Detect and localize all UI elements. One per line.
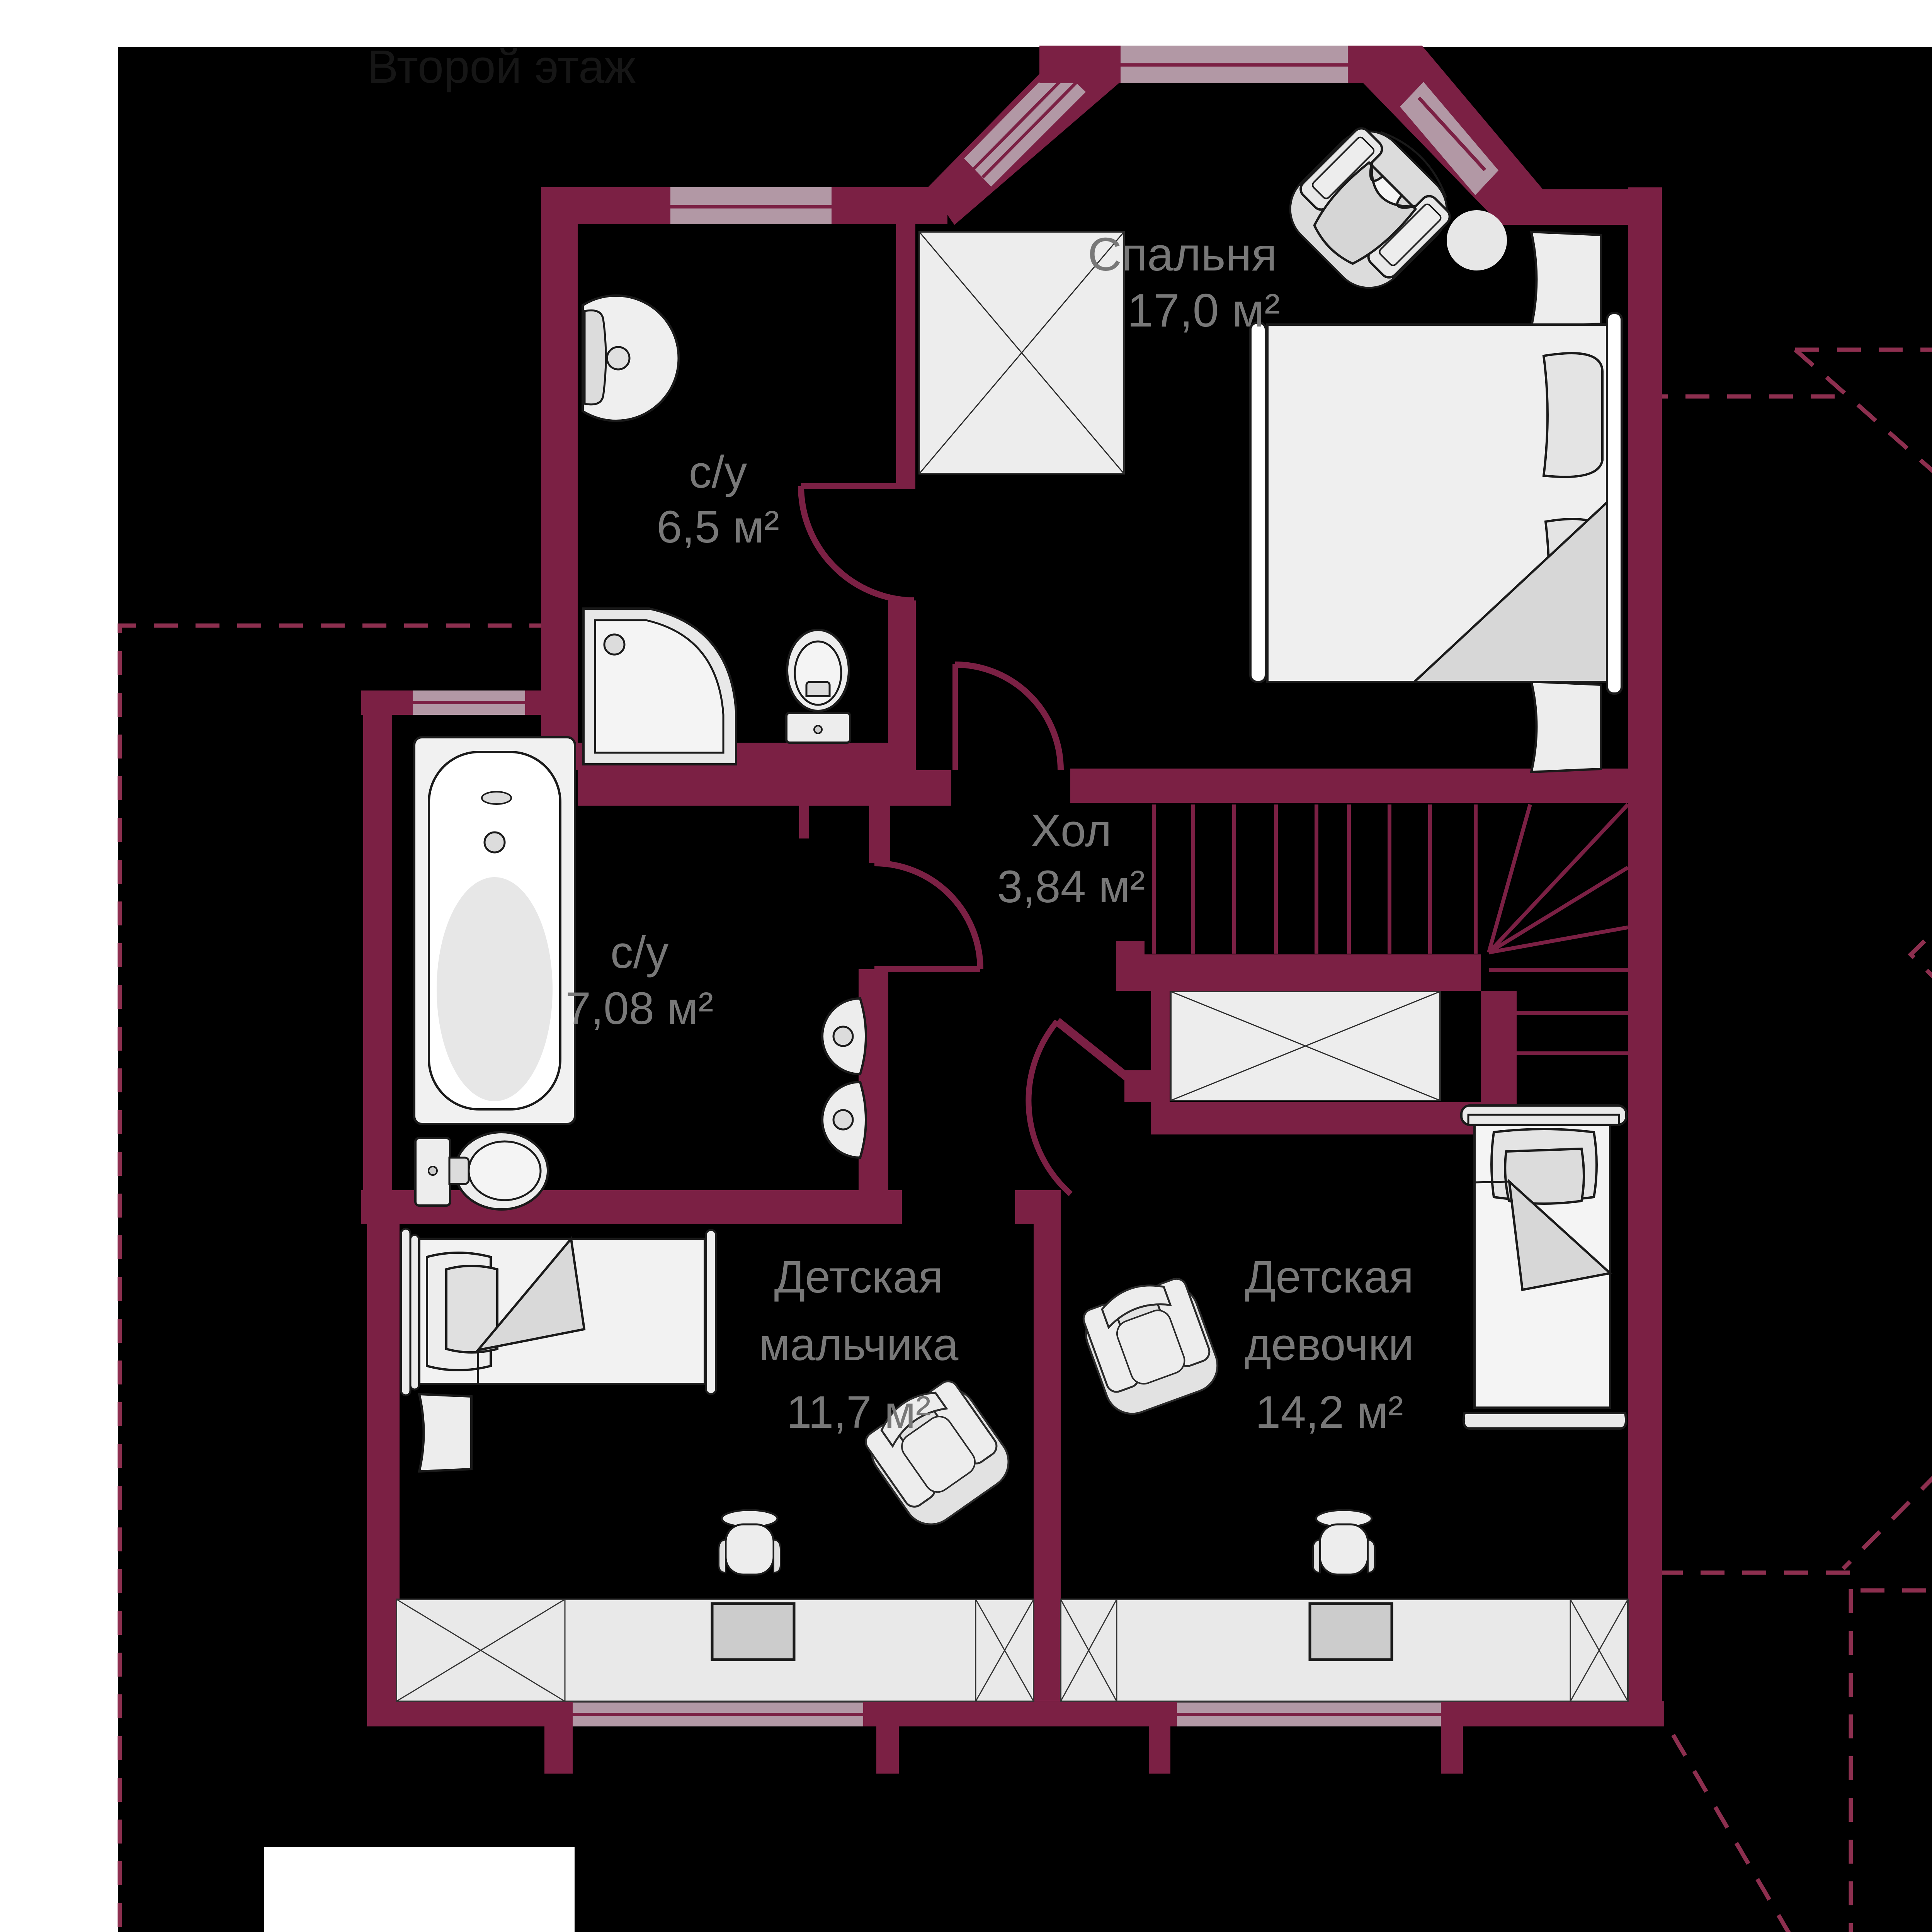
svg-text:Спальня: Спальня [1088, 228, 1277, 281]
svg-text:11,7 м²: 11,7 м² [786, 1387, 931, 1438]
svg-text:3,84 м²: 3,84 м² [997, 861, 1145, 912]
svg-text:мальчика: мальчика [759, 1319, 959, 1370]
svg-text:Детская: Детская [774, 1252, 943, 1303]
svg-text:14,2 м²: 14,2 м² [1255, 1387, 1403, 1438]
svg-text:Хол: Хол [1031, 805, 1111, 856]
svg-text:Детская: Детская [1245, 1252, 1413, 1303]
svg-text:с/у: с/у [689, 447, 747, 498]
svg-text:Второй этаж: Второй этаж [367, 40, 636, 93]
svg-text:с/у: с/у [611, 927, 669, 978]
svg-text:девочки: девочки [1245, 1319, 1414, 1370]
svg-text:6,5 м²: 6,5 м² [656, 502, 779, 553]
svg-text:7,08 м²: 7,08 м² [566, 983, 714, 1034]
svg-text:17,0 м²: 17,0 м² [1127, 284, 1280, 337]
